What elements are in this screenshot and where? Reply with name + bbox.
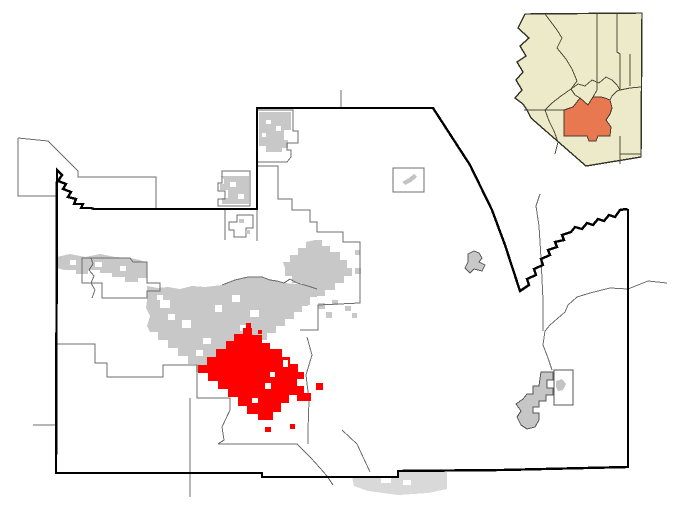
area-central-gap	[250, 310, 259, 317]
boundary-south-diagonal-2	[342, 430, 370, 472]
enclave-speck	[239, 219, 244, 223]
area-speck	[326, 312, 332, 318]
state-inset	[515, 13, 642, 166]
highlighted-place-gap	[283, 360, 288, 367]
area-central-gap	[196, 350, 203, 356]
unincorporated-areas	[57, 112, 447, 495]
boundary-river-east	[543, 281, 667, 370]
outside-area-south	[352, 472, 447, 495]
area-speck	[300, 300, 308, 306]
area-central-gap	[168, 314, 175, 320]
area-speck	[345, 306, 351, 311]
highlighted-place-satellite	[316, 383, 323, 390]
area-nw-notch-gap	[230, 182, 236, 187]
small-places	[393, 168, 573, 429]
area-nw-notch	[220, 176, 249, 204]
highlighted-place-satellite	[246, 323, 251, 328]
area-west-town-gap	[70, 260, 76, 265]
area-north-town-gap	[262, 133, 266, 137]
area-central-gap	[157, 295, 163, 300]
area-speck	[355, 250, 360, 255]
area-north-town	[259, 112, 291, 152]
area-central-gap	[215, 305, 222, 312]
highlighted-place-satellite	[258, 330, 262, 334]
outside-area-south-gap	[403, 480, 411, 485]
boundary-nw-outer-top	[18, 138, 156, 209]
locator-map-figure	[0, 0, 683, 512]
area-north-town-gap	[276, 126, 281, 131]
area-nw-notch-gap	[238, 194, 244, 199]
area-speck	[352, 313, 357, 318]
highlighted-place-satellite	[290, 424, 295, 429]
boundary-nw-outer-left	[18, 138, 56, 196]
area-west-town-gap	[120, 266, 126, 271]
highlighted-place-gap	[265, 383, 271, 389]
area-west-town-gap	[95, 262, 102, 267]
highlighted-place-gap	[270, 372, 275, 377]
boundary-central-diagonal	[306, 337, 312, 444]
area-central-gap	[160, 300, 170, 308]
area-central-gap	[232, 295, 240, 302]
area-speck	[318, 303, 325, 309]
area-north-town-gap	[266, 120, 271, 124]
place-blob-southeast	[516, 372, 553, 429]
boundary-south-diagonal	[297, 444, 333, 485]
area-central-gap	[182, 320, 191, 328]
highlighted-place-satellite	[265, 427, 271, 432]
highlighted-place-gap	[252, 398, 258, 403]
county-map-svg	[0, 0, 683, 512]
enclave-speck	[246, 230, 250, 234]
area-central-gap	[203, 338, 211, 344]
place-small-central	[465, 251, 485, 273]
